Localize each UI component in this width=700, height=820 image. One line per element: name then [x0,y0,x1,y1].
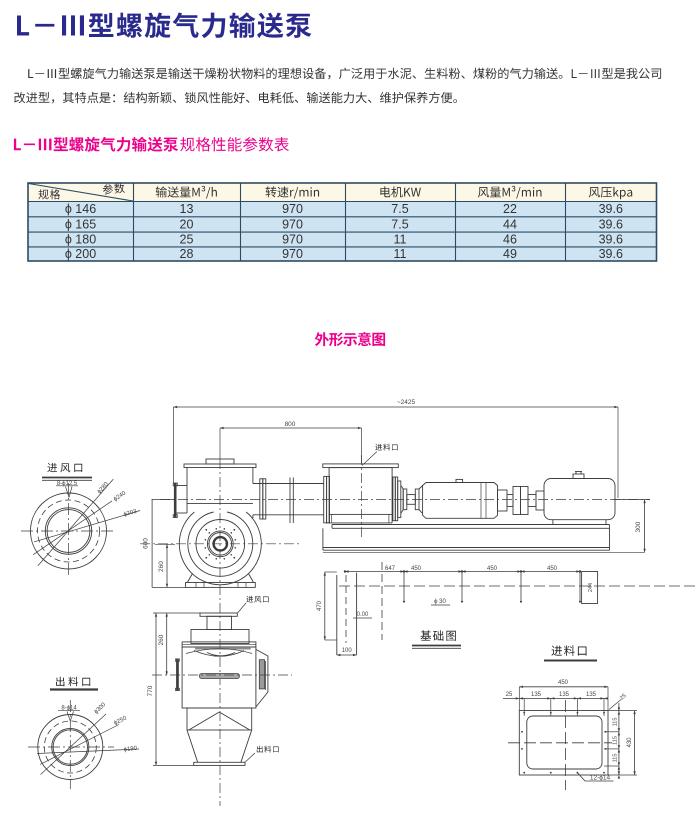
svg-text:ϕ 146: ϕ 146 [65,202,96,216]
svg-text:39.6: 39.6 [599,202,623,216]
svg-text:135: 135 [531,692,542,698]
svg-text:7.5: 7.5 [391,217,408,231]
svg-text:100: 100 [342,648,353,654]
svg-text:450: 450 [547,566,558,572]
svg-text:115: 115 [613,754,619,763]
svg-text:770: 770 [147,685,154,696]
svg-text:135: 135 [559,692,570,698]
svg-text:970: 970 [282,202,303,216]
svg-text:13: 13 [180,202,194,216]
svg-text:ϕ 165: ϕ 165 [65,217,96,231]
svg-text:7.5: 7.5 [391,202,408,216]
svg-text:25: 25 [180,232,194,246]
svg-text:135: 135 [586,692,597,698]
svg-text:970: 970 [282,247,303,261]
svg-text:25: 25 [506,692,513,698]
svg-text:39.6: 39.6 [599,217,623,231]
svg-text:970: 970 [282,217,303,231]
svg-text:11: 11 [394,232,407,246]
svg-text:260: 260 [158,561,165,572]
svg-text:44: 44 [503,217,517,231]
svg-text:ϕ 200: ϕ 200 [65,247,96,261]
svg-text:11: 11 [394,247,407,261]
svg-text:49: 49 [503,247,517,261]
svg-text:300: 300 [635,521,642,532]
svg-text:450: 450 [487,566,498,572]
svg-text:430: 430 [627,737,633,748]
svg-text:0.00: 0.00 [357,612,369,618]
svg-text:647: 647 [385,566,396,572]
svg-text:39.6: 39.6 [599,247,623,261]
svg-text:28: 28 [180,247,194,261]
svg-text:600: 600 [143,538,150,549]
svg-text:39.6: 39.6 [599,232,623,246]
svg-text:470: 470 [317,600,323,611]
svg-text:450: 450 [411,566,422,572]
svg-text:115: 115 [613,718,619,727]
svg-text:ϕ 30: ϕ 30 [434,599,446,605]
svg-text:ϕ 180: ϕ 180 [65,232,96,246]
svg-text:12-ϕ14: 12-ϕ14 [590,775,611,782]
svg-text:260: 260 [158,634,165,645]
svg-text:244: 244 [588,583,594,592]
svg-text:115: 115 [613,736,619,745]
svg-text:800: 800 [285,421,296,428]
svg-text:20: 20 [180,217,194,231]
svg-text:46: 46 [503,232,517,246]
svg-text:450: 450 [558,680,569,686]
svg-text:970: 970 [282,232,303,246]
svg-text:22: 22 [503,202,517,216]
svg-text:~2425: ~2425 [397,399,416,406]
